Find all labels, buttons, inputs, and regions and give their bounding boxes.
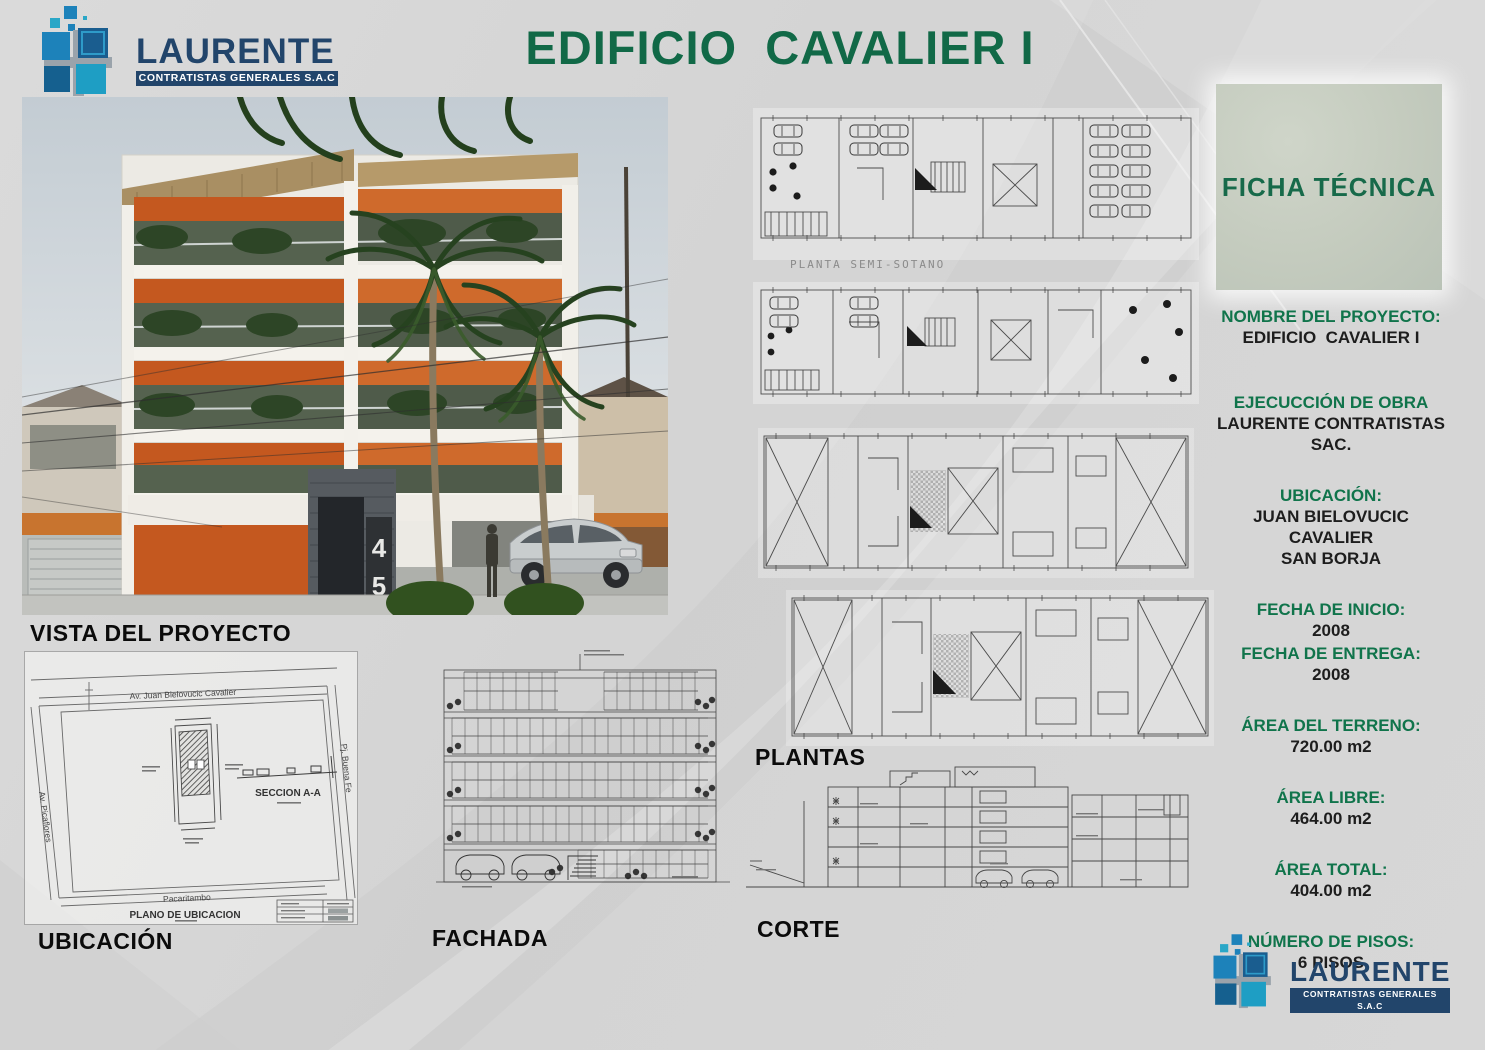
ficha-field: EJECUCCIÓN DE OBRALAURENTE CONTRATISTASS… [1198,392,1464,455]
ficha-field: ÁREA LIBRE:464.00 m2 [1198,787,1464,829]
ficha-field: ÁREA DEL TERRENO:720.00 m2 [1198,715,1464,757]
section-label-fachada: FACHADA [432,925,548,952]
ficha-field-value: CAVALIER [1198,527,1464,548]
site-plan-drawing: SECCION A-A Av. Juan Bielovucic Cavalier… [25,652,357,924]
ficha-field-value: 2008 [1198,620,1464,641]
ficha-field-label: ÁREA TOTAL: [1198,859,1464,880]
ficha-tecnica-panel: FICHA TÉCNICA [1216,84,1442,290]
ficha-field: ÁREA TOTAL:404.00 m2 [1198,859,1464,901]
ficha-field-label: NOMBRE DEL PROYECTO: [1198,306,1464,327]
ficha-field-value: EDIFICIO CAVALIER I [1198,327,1464,348]
ficha-field: FECHA DE INICIO:2008 [1198,599,1464,641]
site-plan-section-label: SECCION A-A [255,788,321,799]
floor-plan-level-2 [758,428,1194,578]
company-tagline: CONTRATISTAS GENERALES S.A.C [136,71,338,86]
ficha-fields: NOMBRE DEL PROYECTO:EDIFICIO CAVALIER IE… [1198,306,1464,1003]
ficha-field: NOMBRE DEL PROYECTO:EDIFICIO CAVALIER I [1198,306,1464,348]
company-name: LAURENTE [136,34,338,69]
ficha-field-value: JUAN BIELOVUCIC [1198,506,1464,527]
company-logo-icon [28,4,128,105]
section-label-ubicacion: UBICACIÓN [38,928,173,955]
ficha-field-label: ÁREA DEL TERRENO: [1198,715,1464,736]
street-label-left: Av. Picaflores [37,791,54,843]
street-label-bottom: Pacaritambo [163,892,211,904]
building-number-top: 4 [372,533,387,563]
ficha-field-value: SAC. [1198,434,1464,455]
section-label-vista: VISTA DEL PROYECTO [30,620,291,647]
company-logo-icon [1202,932,1284,1017]
ficha-field-label: UBICACIÓN: [1198,485,1464,506]
ficha-field-label: ÁREA LIBRE: [1198,787,1464,808]
floor-plan-level-1 [753,282,1199,404]
ficha-field-label: FECHA DE INICIO: [1198,599,1464,620]
ficha-field-value: 404.00 m2 [1198,880,1464,901]
section-label-corte: CORTE [757,916,840,943]
ficha-field-value: LAURENTE CONTRATISTAS [1198,413,1464,434]
floor-plan-semi-sotano [753,108,1199,260]
company-logo-footer: LAURENTE CONTRATISTAS GENERALES S.A.C [1202,932,1450,1017]
company-tagline: CONTRATISTAS GENERALES S.A.C [1290,988,1450,1013]
ficha-field-label: FECHA DE ENTREGA: [1198,643,1464,664]
street-label-right: Pj. Buena Fe [339,743,354,793]
company-name: LAURENTE [1290,958,1450,986]
ficha-field-value: 464.00 m2 [1198,808,1464,829]
ficha-field-value: 2008 [1198,664,1464,685]
section-drawing-corte [740,765,1195,913]
site-plan-title: PLANO DE UBICACION [129,910,240,921]
floor-plan-level-3 [786,590,1214,746]
ficha-field: UBICACIÓN:JUAN BIELOVUCICCAVALIERSAN BOR… [1198,485,1464,569]
ficha-field: FECHA DE ENTREGA:2008 [1198,643,1464,685]
ficha-tecnica-title: FICHA TÉCNICA [1222,172,1436,203]
page-title: EDIFICIO CAVALIER I [465,20,1095,75]
ficha-field-value: 720.00 m2 [1198,736,1464,757]
ficha-field-label: EJECUCCIÓN DE OBRA [1198,392,1464,413]
ficha-field-value: SAN BORJA [1198,548,1464,569]
street-label-top: Av. Juan Bielovucic Cavalier [129,687,236,701]
project-photo: 4 5 [22,97,668,620]
company-logo: LAURENTE CONTRATISTAS GENERALES S.A.C [28,4,338,105]
facade-drawing [428,642,732,919]
plan-caption-semi-sotano: PLANTA SEMI-SOTANO [790,258,945,271]
